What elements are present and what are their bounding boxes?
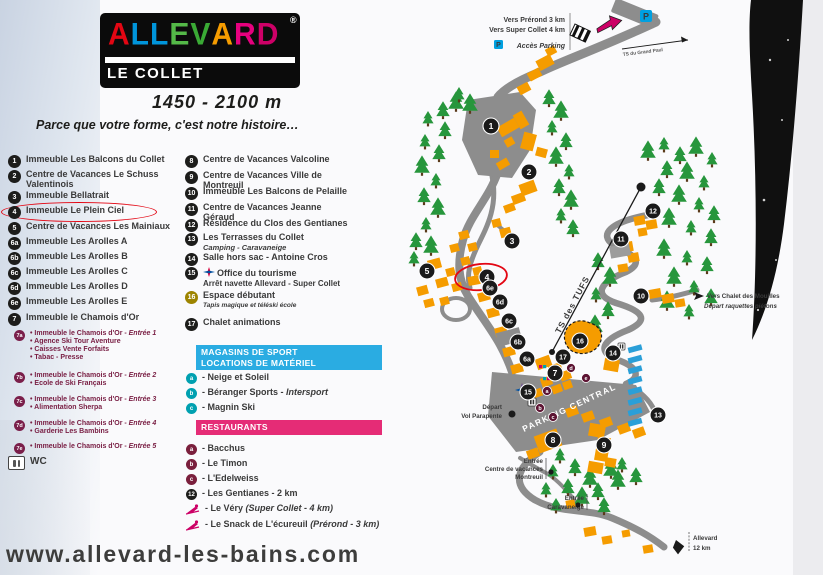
building — [423, 298, 435, 308]
tree-icon — [559, 132, 572, 150]
map-marker-6b: 6b — [510, 334, 526, 350]
tree-icon — [666, 266, 682, 286]
restaurants-header: RESTAURANTS — [196, 420, 382, 435]
legend-item: 13Les Terrasses du ColletCamping - Carav… — [185, 233, 355, 252]
legend-badge: 3 — [8, 191, 21, 204]
tree-icon — [542, 89, 555, 107]
legend-subline-italic: Entrée 1 — [129, 330, 157, 337]
brand-name: ALLEVARD — [108, 20, 279, 50]
tree-icon — [563, 164, 574, 179]
parking-icon-letter: P — [643, 12, 649, 22]
altitude-range: 1450 - 2100 m — [152, 92, 282, 113]
tree-icon — [548, 146, 564, 166]
shops-header-line1: MAGASINS DE SPORT — [201, 347, 377, 358]
legend-label: - Le Timon — [202, 459, 377, 469]
skier-icon — [186, 520, 200, 531]
tree-icon — [554, 448, 565, 463]
building — [601, 535, 612, 545]
svg-text:6e: 6e — [486, 285, 494, 292]
svg-text:Allevard: Allevard — [693, 535, 718, 542]
legend-badge: 6d — [8, 282, 21, 295]
building — [439, 296, 450, 306]
legend-item: 15Office du tourismeArrêt navette Alleva… — [185, 267, 355, 288]
tree-icon — [681, 250, 692, 265]
legend-label: - Bacchus — [202, 444, 377, 454]
legend-badge: 7d — [14, 420, 25, 431]
legend-label: Immeuble Le Plein Ciel — [26, 206, 178, 216]
svg-text:6b: 6b — [514, 339, 522, 346]
vers-prerond-label: Vers Prérond 3 km — [504, 17, 565, 24]
tree-icon — [553, 100, 569, 120]
legend-subline: • Tabac - Presse — [30, 354, 156, 362]
crosswalk — [570, 24, 590, 42]
legend-item: 5Centre de Vacances Les Mainiaux — [8, 222, 178, 235]
legend-item: 6aImmeuble Les Arolles A — [8, 237, 178, 250]
map-letter-marker-b: b — [536, 404, 545, 413]
legend-label: Salle hors sac - Antoine Cros — [203, 253, 355, 263]
legend-label: - Le Véry (Super Collet - 4 km) — [205, 504, 380, 514]
legend-subline: • Ecole de Ski Français — [30, 380, 156, 388]
legend-item: 8Centre de Vacances Valcoline — [185, 155, 355, 168]
legend-label: - Neige et Soleil — [202, 373, 377, 383]
legend-sublines: • Immeuble le Chamois d'Or - Entrée 2• E… — [30, 372, 156, 388]
legend-label: Office du tourismeArrêt navette Allevard… — [203, 267, 355, 288]
tree-icon — [688, 136, 704, 156]
legend-label: Immeuble Les Arolles A — [26, 237, 178, 247]
legend-sublabel: Arrêt navette Allevard - Super Collet — [203, 279, 355, 289]
legend-label: - Le Snack de L'écureuil (Prérond - 3 km… — [205, 520, 380, 530]
legend-label: - Magnin Ski — [202, 403, 377, 413]
tree-icon — [658, 137, 669, 152]
logo-subtitle: LE COLLET — [107, 65, 204, 82]
legend-item: 6dImmeuble Les Arolles D — [8, 282, 178, 295]
tree-icon — [563, 189, 579, 209]
map-marker-11: 11 — [613, 231, 629, 247]
legend-sublines: • Immeuble le Chamois d'Or - Entrée 4• G… — [30, 420, 156, 436]
legend-badge: 17 — [185, 318, 198, 331]
map-marker-3: 3 — [504, 233, 520, 249]
tree-icon — [462, 93, 478, 113]
tree-icon — [419, 134, 430, 149]
map-marker-6a: 6a — [519, 351, 535, 367]
svg-text:Entrée: Entrée — [524, 458, 544, 465]
legend-subline: • Immeuble le Chamois d'Or - Entrée 2 — [30, 372, 156, 380]
building — [617, 263, 628, 273]
tree-icon — [540, 482, 551, 497]
svg-text:2: 2 — [527, 167, 532, 177]
svg-text:3: 3 — [510, 236, 515, 246]
map-marker-16: 16 — [572, 333, 588, 349]
tree-icon — [409, 232, 422, 250]
shops-header-line2: LOCATIONS DE MATÉRIEL — [201, 358, 377, 369]
building — [535, 147, 548, 159]
brand-letter: V — [190, 19, 211, 51]
wc-icon — [8, 456, 25, 470]
legend-label: Immeuble Les Balcons de Pelaille — [203, 187, 355, 197]
legend-item: 2Centre de Vacances Le Schuss Valentinoi… — [8, 170, 178, 189]
label-italic-part: (Super Collet - 4 km) — [246, 503, 334, 513]
legend-label: Centre de Vacances Valcoline — [203, 155, 355, 165]
website-url: www.allevard-les-bains.com — [6, 541, 360, 568]
legend-subline-italic: Entrée 3 — [129, 396, 157, 403]
legend-label: - Les Gentianes - 2 km — [202, 489, 377, 499]
map-letter-marker-d: d — [567, 364, 576, 373]
tree-icon — [438, 121, 451, 139]
svg-text:Départ raquettes piétons: Départ raquettes piétons — [704, 303, 777, 310]
svg-text:1: 1 — [489, 121, 494, 131]
location-badge: a — [186, 444, 197, 455]
tree-icon — [693, 197, 704, 212]
building — [458, 230, 470, 240]
brand-letter: A — [108, 19, 131, 51]
svg-text:5: 5 — [425, 266, 430, 276]
tree-icon — [640, 140, 656, 160]
legend-badge: 13 — [185, 233, 198, 246]
building — [632, 426, 646, 439]
legend-label: Les Terrasses du ColletCamping - Caravan… — [203, 233, 355, 252]
building — [435, 277, 449, 289]
building — [490, 150, 499, 158]
building — [645, 219, 657, 230]
tree-icon — [685, 220, 696, 235]
ts-grand-label: TS du Grand Paul — [623, 47, 664, 58]
tree-icon — [436, 101, 449, 119]
legend-badge: 6b — [8, 252, 21, 265]
legend-badge: 7a — [14, 330, 25, 341]
brand-letter: R — [234, 19, 257, 51]
legend-item: a- Neige et Soleil — [186, 373, 377, 384]
vers-super-collet-label: Vers Super Collet 4 km — [489, 27, 565, 34]
legend-item: 7d• Immeuble le Chamois d'Or - Entrée 4•… — [14, 420, 156, 436]
building — [604, 457, 616, 468]
legend-subline-italic: Entrée 5 — [129, 443, 157, 450]
legend-badge: 12 — [185, 219, 198, 232]
svg-text:c: c — [551, 415, 554, 421]
brand-letter: E — [169, 19, 190, 51]
legend-label: Espace débutantTapis magique et téléski … — [203, 291, 355, 310]
map-marker-6d: 6d — [492, 294, 508, 310]
map-marker-8: 8 — [545, 432, 561, 448]
legend-sublines: • Immeuble le Chamois d'Or - Entrée 1• A… — [30, 330, 156, 362]
tree-icon — [422, 111, 433, 126]
skier-icon — [186, 504, 200, 515]
legend-item: - Le Véry (Super Collet - 4 km) — [186, 504, 380, 515]
legend-label: - L'Edelweiss — [202, 474, 377, 484]
legend-subline-italic: Entrée 2 — [129, 372, 157, 379]
svg-text:6a: 6a — [523, 356, 531, 363]
svg-text:Vol Parapente: Vol Parapente — [461, 413, 502, 420]
svg-text:12 km: 12 km — [693, 545, 711, 552]
building — [583, 526, 596, 537]
svg-text:11: 11 — [617, 236, 625, 243]
tree-icon — [430, 173, 441, 188]
building — [633, 215, 645, 226]
legend-badge: 10 — [185, 187, 198, 200]
map-marker-6e: 6e — [482, 280, 498, 296]
tree-icon — [408, 251, 419, 266]
legend-badge: 6a — [8, 237, 21, 250]
map-marker-7: 7 — [547, 365, 563, 381]
svg-text:14: 14 — [609, 350, 617, 357]
legend-subline: • Caisses Vente Forfaits — [30, 346, 156, 354]
tree-icon — [420, 217, 431, 232]
legend-badge: 7 — [8, 313, 21, 326]
tree-icon — [552, 178, 565, 196]
location-badge: c — [186, 474, 197, 485]
tree-icon — [568, 458, 581, 476]
legend-item: 12Résidence du Clos des Gentianes — [185, 219, 355, 232]
tree-icon — [661, 207, 677, 227]
legend-subline: • Alimentation Sherpa — [30, 404, 156, 412]
location-badge: c — [186, 403, 197, 414]
legend-label: Immeuble Bellatrait — [26, 191, 178, 201]
svg-text:7: 7 — [553, 368, 558, 378]
legend-label: Immeuble Les Arolles C — [26, 267, 178, 277]
legend-item: 3Immeuble Bellatrait — [8, 191, 178, 204]
legend-item: 7a• Immeuble le Chamois d'Or - Entrée 1•… — [14, 330, 156, 362]
location-badge: b — [186, 388, 197, 399]
tagline: Parce que votre forme, c'est notre histo… — [36, 118, 299, 132]
tree-icon — [555, 208, 566, 223]
legend-badge: 4 — [8, 206, 21, 219]
legend-badge: 16 — [185, 291, 198, 304]
map-marker-6c: 6c — [501, 313, 517, 329]
brand-letter: L — [131, 19, 150, 51]
legend-label: Immeuble le Chamois d'Or — [26, 313, 178, 323]
map-letter-marker-e: e — [582, 374, 591, 383]
legend-item: 7c• Immeuble le Chamois d'Or - Entrée 3•… — [14, 396, 156, 412]
legend-badge: 7e — [14, 443, 25, 454]
tree-icon — [566, 219, 579, 237]
tree-icon — [417, 187, 430, 205]
svg-text:Montreuil: Montreuil — [515, 474, 543, 481]
legend-item: c- L'Edelweiss — [186, 474, 377, 485]
svg-text:15: 15 — [524, 389, 532, 396]
svg-text:9: 9 — [602, 440, 607, 450]
legend-label: Immeuble Les Arolles D — [26, 282, 178, 292]
building — [637, 227, 647, 236]
legend-subline: • Immeuble le Chamois d'Or - Entrée 3 — [30, 396, 156, 404]
legend-badge: 14 — [185, 253, 198, 266]
map-marker-9: 9 — [596, 437, 612, 453]
legend-badge: 9 — [185, 171, 198, 184]
tree-icon — [629, 467, 642, 485]
svg-text:Entrée: Entrée — [565, 495, 585, 502]
legend-item: 6bImmeuble Les Arolles B — [8, 252, 178, 265]
camping-pitch — [628, 355, 643, 364]
svg-text:6d: 6d — [496, 299, 504, 306]
legend-item: 17Chalet animations — [185, 318, 355, 331]
tree-icon — [671, 184, 687, 204]
tree-icon — [660, 160, 673, 178]
legend-sublines: • Immeuble le Chamois d'Or - Entrée 5 — [30, 443, 156, 451]
svg-text:d: d — [569, 366, 572, 372]
legend-badge: 11 — [185, 203, 198, 216]
legend-item: 14Salle hors sac - Antoine Cros — [185, 253, 355, 266]
legend-subline: • Agence Ski Tour Aventure — [30, 338, 156, 346]
logo-strip — [105, 57, 295, 63]
legend-badge: 6c — [8, 267, 21, 280]
building — [674, 298, 685, 308]
legend-item: 7b• Immeuble le Chamois d'Or - Entrée 2•… — [14, 372, 156, 388]
map-marker-13: 13 — [650, 407, 666, 423]
legend-subline: • Immeuble le Chamois d'Or - Entrée 5 — [30, 443, 156, 451]
direction-arrow — [595, 14, 623, 33]
allevard-direction: Allevard 12 km — [672, 532, 718, 555]
tree-icon — [704, 228, 717, 246]
legend-label: Centre de Vacances Les Mainiaux — [26, 222, 178, 232]
parking-icon-small-letter: P — [496, 42, 501, 49]
brand-letter: L — [150, 19, 169, 51]
label-italic-part: Intersport — [286, 387, 328, 397]
svg-text:Vers Chalet des Mouilles: Vers Chalet des Mouilles — [707, 293, 780, 300]
map-marker-12: 12 — [645, 203, 661, 219]
building — [416, 285, 429, 297]
svg-text:Départ: Départ — [482, 404, 502, 411]
legend-item: 6eImmeuble Les Arolles E — [8, 297, 178, 310]
legend-sublabel: Tapis magique et téléski école — [203, 301, 355, 311]
tree-icon — [423, 235, 439, 255]
tree-icon — [591, 482, 604, 500]
camping-pitch — [628, 344, 643, 353]
map-marker-5: 5 — [419, 263, 435, 279]
acces-parking-label: Accès Parking — [516, 43, 566, 50]
svg-text:12: 12 — [649, 208, 657, 215]
legend-item: 7Immeuble le Chamois d'Or — [8, 313, 178, 326]
svg-text:10: 10 — [637, 293, 645, 300]
legend-label: Immeuble Les Arolles E — [26, 297, 178, 307]
legend-label: Immeuble Les Balcons du Collet — [26, 155, 178, 165]
legend-item: 10Immeuble Les Balcons de Pelaille — [185, 187, 355, 200]
location-badge: a — [186, 373, 197, 384]
legend-sublines: • Immeuble le Chamois d'Or - Entrée 3• A… — [30, 396, 156, 412]
shops-header: MAGASINS DE SPORT LOCATIONS DE MATÉRIEL — [196, 345, 382, 370]
legend-item: c- Magnin Ski — [186, 403, 377, 414]
legend-item: - Le Snack de L'écureuil (Prérond - 3 km… — [186, 520, 380, 531]
map-letter-marker-c: c — [549, 413, 558, 422]
legend-item: 16Espace débutantTapis magique et télésk… — [185, 291, 355, 310]
tree-icon — [546, 120, 557, 135]
tree-icon — [430, 197, 446, 217]
legend-subline: • Garderie Les Bambins — [30, 428, 156, 436]
legend-item: a- Bacchus — [186, 444, 377, 455]
legend-badge: 7c — [14, 396, 25, 407]
location-badge: 12 — [186, 489, 197, 500]
tree-icon — [673, 146, 686, 164]
svg-text:17: 17 — [559, 354, 567, 361]
tree-icon — [679, 161, 695, 181]
legend-badge: 8 — [185, 155, 198, 168]
legend-badge: 2 — [8, 170, 21, 183]
map-marker-14: 14 — [605, 345, 621, 361]
map-marker-17: 17 — [555, 349, 571, 365]
legend-subline-italic: Entrée 4 — [129, 420, 157, 427]
tree-icon — [706, 152, 717, 167]
legend-badge: 15 — [185, 267, 198, 280]
legend-label: Résidence du Clos des Gentianes — [203, 219, 355, 229]
svg-text:Centre de vacances: Centre de vacances — [485, 466, 544, 473]
photo-dark-band — [749, 0, 803, 340]
map-marker-1: 1 — [483, 118, 499, 134]
tree-icon — [698, 175, 709, 190]
legend-item: b- Béranger Sports - Intersport — [186, 388, 377, 399]
tree-icon — [414, 155, 430, 175]
tree-icon — [432, 144, 445, 162]
tree-icon — [707, 205, 720, 223]
map-marker-2: 2 — [521, 164, 537, 180]
building — [621, 529, 630, 537]
tree-icon — [602, 266, 618, 286]
ts-grand-lift: TS du Grand Paul — [622, 37, 688, 58]
legend-badge: 7b — [14, 372, 25, 383]
brand-letter: D — [257, 19, 280, 51]
legend-label: - Béranger Sports - Intersport — [202, 388, 377, 398]
map-marker-10: 10 — [633, 288, 649, 304]
building — [642, 544, 653, 554]
registered-mark: ® — [290, 15, 297, 25]
tourist-office-icon — [203, 267, 215, 278]
legend-item: 7e• Immeuble le Chamois d'Or - Entrée 5 — [14, 443, 156, 454]
svg-text:13: 13 — [654, 412, 662, 419]
tree-icon — [656, 238, 672, 258]
legend-item: 4Immeuble Le Plein Ciel — [8, 206, 178, 219]
label-italic-part: (Prérond - 3 km) — [310, 519, 379, 529]
legend-subline: • Immeuble le Chamois d'Or - Entrée 1 — [30, 330, 156, 338]
restaurants-header-label: RESTAURANTS — [201, 422, 377, 433]
building — [661, 293, 674, 304]
svg-text:16: 16 — [576, 338, 584, 345]
map-marker-15: 15 — [520, 384, 536, 400]
legend-item: 12- Les Gentianes - 2 km — [186, 489, 377, 500]
tree-icon — [700, 256, 713, 274]
svg-text:e: e — [584, 376, 587, 382]
wc-label: WC — [30, 456, 182, 468]
building — [445, 267, 456, 277]
svg-text:8: 8 — [551, 435, 556, 445]
wc-row: WC — [8, 456, 182, 470]
legend-subline: • Immeuble le Chamois d'Or - Entrée 4 — [30, 420, 156, 428]
resort-map-page: TS des TUFS TS du Grand Paul Vers Préron… — [0, 0, 823, 575]
svg-text:6c: 6c — [505, 318, 513, 325]
legend-badge: 1 — [8, 155, 21, 168]
tree-icon — [683, 304, 694, 319]
map-letter-marker-a: a — [543, 387, 552, 396]
legend-label: Immeuble Les Arolles B — [26, 252, 178, 262]
legend-label: Centre de Vacances Le Schuss Valentinois — [26, 170, 178, 189]
legend-sublabel: Camping - Caravaneige — [203, 243, 355, 253]
allevard-logo: ALLEVARD LE COLLET — [100, 13, 300, 88]
legend-badge: 6e — [8, 297, 21, 310]
legend-badge: 5 — [8, 222, 21, 235]
legend-item: b- Le Timon — [186, 459, 377, 470]
tree-icon — [652, 178, 665, 196]
legend-label: Chalet animations — [203, 318, 355, 328]
brand-letter: A — [211, 19, 234, 51]
legend-item: 1Immeuble Les Balcons du Collet — [8, 155, 178, 168]
location-badge: b — [186, 459, 197, 470]
legend-item: 6cImmeuble Les Arolles C — [8, 267, 178, 280]
